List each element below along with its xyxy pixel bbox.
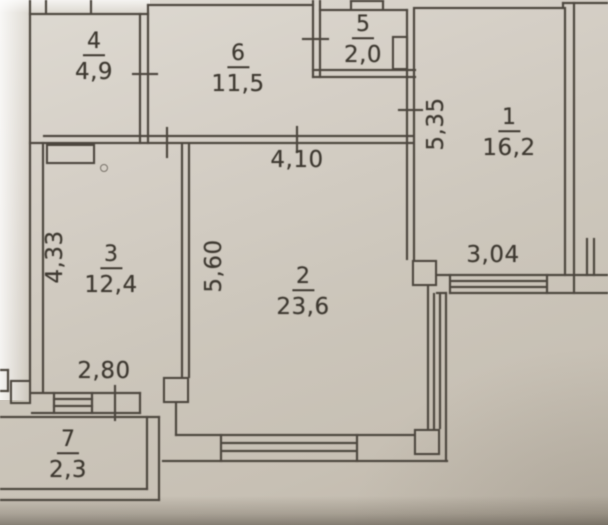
- wall-room4-tab-right: [90, 0, 92, 13]
- room-2-number: 2: [292, 265, 314, 291]
- pillar-room2-bottom-left: [163, 377, 189, 403]
- room-6-number: 6: [227, 42, 249, 68]
- wall-room5-tab-left: [350, 0, 352, 9]
- window-room1-hatch-1: [451, 280, 547, 282]
- wall-neighbor-left: [586, 238, 588, 276]
- wall-neighbor-right: [593, 238, 595, 276]
- window-room2-hatch-1: [222, 442, 356, 444]
- room-6-area: 11,5: [211, 71, 264, 97]
- pillar-room3-corner: [10, 380, 31, 404]
- room-7-number: 7: [57, 428, 79, 454]
- wall-room4-top: [29, 13, 149, 15]
- wall-room6-top: [147, 4, 314, 6]
- wall-room5-tab-right: [382, 0, 384, 9]
- wall-rooms-3-2-left: [181, 144, 183, 378]
- room-1-area: 16,2: [482, 135, 535, 161]
- room-5-area: 2,0: [344, 42, 382, 68]
- closet-room3: [46, 144, 95, 164]
- wall-room4-right-inner: [139, 13, 141, 144]
- wall-room1-right-outer: [573, 2, 575, 294]
- pillar-room2-top-right: [412, 260, 437, 286]
- wall-room2-bottom-connector: [175, 402, 177, 436]
- window-room3-end-left: [53, 392, 55, 414]
- room-7-label: 7 2,3: [49, 428, 87, 484]
- wall-rooms-3-2-right: [188, 144, 190, 378]
- photo-shade-bottom: [0, 496, 608, 525]
- wall-room4-tab-left: [45, 0, 47, 13]
- wall-room3-bottom-end: [139, 392, 141, 414]
- tick-middle-wall-left: [166, 127, 168, 158]
- room-3-number: 3: [100, 243, 122, 269]
- window-room3-hatch-2: [53, 405, 93, 407]
- tick-room4-wall: [132, 73, 158, 75]
- window-room2-end-left: [220, 434, 222, 462]
- window-room1-end-right: [546, 274, 548, 294]
- window-room3-hatch-1: [53, 398, 93, 400]
- room-4-label: 4 4,9: [75, 30, 113, 86]
- room-5-label: 5 2,0: [344, 13, 382, 69]
- room-2-area: 23,6: [276, 294, 329, 320]
- room-1-number: 1: [498, 106, 520, 132]
- dimension-room1-depth: 5,35: [423, 97, 449, 150]
- wall-room3-bottom-outer: [31, 392, 141, 394]
- window-room3-end-right: [91, 392, 93, 414]
- dimension-room2-width: 4,10: [270, 147, 323, 173]
- dimension-room1-width: 3,04: [466, 242, 519, 268]
- room-6-label: 6 11,5: [211, 42, 264, 98]
- dimension-room2-depth: 5,60: [201, 239, 227, 292]
- wall-room1-top: [413, 7, 564, 9]
- wall-room3-bottom-inner: [31, 412, 141, 414]
- window-room2-hatch-2: [222, 450, 356, 452]
- dimension-room3-width: 2,80: [77, 358, 130, 384]
- wall-room7-right-outer: [158, 416, 160, 501]
- room-2-label: 2 23,6: [276, 265, 329, 321]
- room-5-number: 5: [352, 13, 374, 39]
- wall-room7-right-inner: [146, 416, 148, 490]
- wall-room5-bottom-outer: [312, 76, 416, 78]
- wall-room7-bottom-inner: [0, 488, 148, 490]
- wall-room5-top: [319, 9, 408, 11]
- stub-neighbor-right: [7, 369, 9, 392]
- window-room1-hatch-2: [451, 286, 547, 288]
- window-room1-end-left: [449, 274, 451, 294]
- wall-top-right-extension: [562, 2, 608, 4]
- wall-room1-right-inner: [564, 7, 566, 276]
- room-3-area: 12,4: [84, 272, 137, 298]
- room-4-area: 4,9: [75, 59, 113, 85]
- room-1-label: 1 16,2: [482, 106, 535, 162]
- room-7-area: 2,3: [49, 457, 87, 483]
- dot-mark-room3: [100, 164, 108, 172]
- wall-middle-upper: [43, 135, 414, 137]
- wall-room5-tab-top: [350, 0, 384, 2]
- wall-room7-top: [0, 416, 160, 418]
- wall-exterior-left: [29, 0, 31, 380]
- wall-room2-right-cap: [436, 292, 447, 294]
- room-4-number: 4: [83, 30, 105, 56]
- room-3-label: 3 12,4: [84, 243, 137, 299]
- wall-room1-bottom-outer: [449, 292, 608, 294]
- dimension-room3-depth: 4,33: [42, 230, 68, 283]
- floor-plan-photo: 4 4,9 6 11,5 5 2,0 1 16,2 3 12,4 2 23,6 …: [0, 0, 608, 525]
- tick-rooms-6-1-wall: [398, 109, 423, 111]
- tick-room5-wall: [302, 38, 329, 40]
- wall-room1-bottom-inner: [436, 274, 608, 276]
